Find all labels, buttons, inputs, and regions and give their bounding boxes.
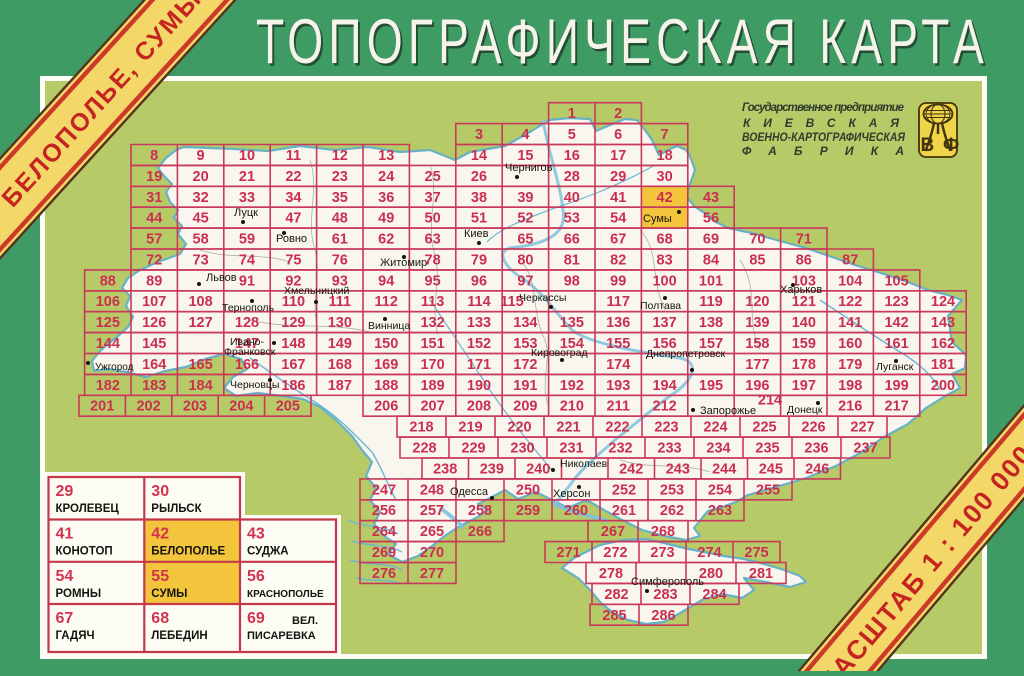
svg-text:234: 234 — [706, 441, 730, 457]
svg-text:139: 139 — [745, 315, 769, 331]
svg-text:113: 113 — [421, 294, 444, 310]
svg-text:50: 50 — [425, 211, 441, 227]
svg-text:268: 268 — [651, 524, 675, 540]
svg-text:Луцк: Луцк — [234, 207, 258, 219]
svg-text:Ф: Ф — [943, 135, 959, 156]
svg-text:186: 186 — [281, 378, 305, 394]
svg-text:260: 260 — [564, 503, 588, 519]
svg-text:133: 133 — [467, 315, 491, 331]
svg-text:220: 220 — [507, 420, 531, 436]
svg-text:51: 51 — [471, 211, 487, 227]
svg-text:207: 207 — [420, 399, 444, 415]
svg-text:164: 164 — [142, 357, 166, 373]
svg-text:224: 224 — [703, 420, 727, 436]
svg-text:СУДЖА: СУДЖА — [247, 546, 289, 558]
svg-text:Кировоград: Кировоград — [531, 347, 588, 359]
svg-text:32: 32 — [193, 190, 209, 206]
svg-text:96: 96 — [471, 273, 487, 289]
svg-text:187: 187 — [328, 378, 352, 394]
svg-text:42: 42 — [657, 190, 673, 206]
svg-text:68: 68 — [151, 610, 169, 627]
svg-text:256: 256 — [372, 503, 396, 519]
svg-text:19: 19 — [146, 169, 162, 185]
svg-text:55: 55 — [151, 568, 169, 585]
svg-text:258: 258 — [468, 503, 492, 519]
svg-text:128: 128 — [235, 315, 259, 331]
svg-text:160: 160 — [838, 336, 862, 352]
svg-text:148: 148 — [281, 336, 305, 352]
svg-text:273: 273 — [650, 545, 674, 561]
svg-text:205: 205 — [276, 399, 300, 415]
svg-text:138: 138 — [699, 315, 723, 331]
svg-text:34: 34 — [285, 190, 301, 206]
svg-text:202: 202 — [136, 399, 160, 415]
svg-text:86: 86 — [796, 252, 812, 268]
svg-text:150: 150 — [374, 336, 398, 352]
svg-text:Хмельницкий: Хмельницкий — [284, 285, 349, 297]
svg-text:КРАСНОПОЛЬЕ: КРАСНОПОЛЬЕ — [247, 589, 324, 600]
svg-text:246: 246 — [805, 461, 829, 477]
svg-text:Винница: Винница — [368, 320, 410, 332]
svg-text:149: 149 — [328, 336, 352, 352]
svg-text:7: 7 — [661, 127, 669, 143]
svg-text:ТОПОГРАФИЧЕСКАЯ КАРТА: ТОПОГРАФИЧЕСКАЯ КАРТА — [256, 7, 989, 77]
svg-text:30: 30 — [657, 169, 673, 185]
svg-text:162: 162 — [931, 336, 955, 352]
svg-text:66: 66 — [564, 232, 580, 248]
svg-text:119: 119 — [699, 294, 722, 310]
svg-text:РОМНЫ: РОМНЫ — [56, 588, 102, 600]
svg-text:29: 29 — [56, 483, 74, 500]
svg-text:188: 188 — [374, 378, 398, 394]
svg-text:212: 212 — [652, 399, 676, 415]
svg-text:41: 41 — [610, 190, 626, 206]
svg-text:135: 135 — [560, 315, 584, 331]
svg-text:106: 106 — [96, 294, 120, 310]
svg-text:125: 125 — [96, 315, 120, 331]
svg-text:104: 104 — [838, 273, 862, 289]
svg-text:59: 59 — [239, 232, 255, 248]
svg-text:26: 26 — [471, 169, 487, 185]
svg-text:85: 85 — [749, 252, 765, 268]
svg-text:Черновцы: Черновцы — [230, 379, 279, 391]
svg-text:РЫЛЬСК: РЫЛЬСК — [151, 503, 202, 515]
svg-text:Государственное предприятие: Государственное предприятие — [742, 102, 905, 114]
svg-text:271: 271 — [556, 545, 580, 561]
svg-text:198: 198 — [838, 378, 862, 394]
svg-text:11: 11 — [286, 148, 301, 164]
svg-text:181: 181 — [931, 357, 955, 373]
svg-text:165: 165 — [188, 357, 212, 373]
svg-text:40: 40 — [564, 190, 580, 206]
svg-text:80: 80 — [517, 252, 533, 268]
svg-text:Чернигов: Чернигов — [505, 162, 553, 174]
svg-text:143: 143 — [931, 315, 955, 331]
svg-text:200: 200 — [931, 378, 955, 394]
svg-text:214: 214 — [758, 393, 782, 409]
svg-text:195: 195 — [699, 378, 723, 394]
svg-text:30: 30 — [151, 483, 169, 500]
svg-text:47: 47 — [285, 211, 301, 227]
svg-text:124: 124 — [931, 294, 955, 310]
svg-text:209: 209 — [513, 399, 537, 415]
svg-text:253: 253 — [660, 482, 684, 498]
svg-text:72: 72 — [146, 252, 162, 268]
svg-text:63: 63 — [425, 232, 441, 248]
svg-text:281: 281 — [749, 566, 773, 582]
svg-text:87: 87 — [842, 252, 858, 268]
svg-text:122: 122 — [838, 294, 862, 310]
svg-text:121: 121 — [792, 294, 816, 310]
svg-text:43: 43 — [703, 190, 719, 206]
svg-text:33: 33 — [239, 190, 255, 206]
svg-text:137: 137 — [652, 315, 676, 331]
svg-text:88: 88 — [100, 273, 116, 289]
svg-text:68: 68 — [657, 232, 673, 248]
svg-text:217: 217 — [884, 399, 908, 415]
svg-text:Черкассы: Черкассы — [519, 292, 566, 304]
svg-text:254: 254 — [708, 482, 732, 498]
svg-text:Донецк: Донецк — [787, 404, 823, 416]
svg-text:243: 243 — [666, 461, 690, 477]
svg-text:276: 276 — [372, 566, 396, 582]
svg-text:218: 218 — [409, 420, 433, 436]
svg-text:152: 152 — [467, 336, 491, 352]
svg-text:12: 12 — [332, 148, 348, 164]
svg-text:105: 105 — [884, 273, 908, 289]
svg-text:71: 71 — [796, 232, 812, 248]
svg-text:129: 129 — [281, 315, 305, 331]
svg-text:КОНОТОП: КОНОТОП — [56, 546, 113, 558]
svg-text:101: 101 — [699, 273, 723, 289]
svg-text:94: 94 — [378, 273, 394, 289]
svg-text:В: В — [921, 135, 935, 156]
svg-text:114: 114 — [467, 294, 490, 310]
svg-text:242: 242 — [619, 461, 643, 477]
svg-text:ВЕЛ.: ВЕЛ. — [292, 615, 318, 627]
svg-text:177: 177 — [745, 357, 769, 373]
svg-text:Херсон: Херсон — [553, 488, 590, 500]
svg-text:КРОЛЕВЕЦ: КРОЛЕВЕЦ — [56, 503, 120, 515]
svg-text:263: 263 — [708, 503, 732, 519]
svg-text:134: 134 — [513, 315, 537, 331]
svg-text:2: 2 — [614, 106, 622, 122]
svg-text:227: 227 — [850, 420, 874, 436]
svg-text:23: 23 — [332, 169, 348, 185]
svg-text:283: 283 — [653, 587, 677, 603]
svg-text:184: 184 — [188, 378, 212, 394]
svg-text:161: 161 — [884, 336, 908, 352]
svg-text:155: 155 — [606, 336, 630, 352]
svg-text:16: 16 — [564, 148, 580, 164]
svg-text:140: 140 — [792, 315, 816, 331]
svg-text:269: 269 — [372, 545, 396, 561]
svg-text:229: 229 — [461, 441, 485, 457]
svg-text:65: 65 — [517, 232, 533, 248]
svg-text:257: 257 — [420, 503, 444, 519]
svg-text:82: 82 — [610, 252, 626, 268]
svg-text:203: 203 — [183, 399, 207, 415]
svg-text:247: 247 — [372, 482, 396, 498]
svg-text:248: 248 — [420, 482, 444, 498]
svg-text:174: 174 — [606, 357, 630, 373]
svg-text:48: 48 — [332, 211, 348, 227]
svg-text:210: 210 — [560, 399, 584, 415]
svg-text:231: 231 — [559, 441, 583, 457]
svg-text:193: 193 — [606, 378, 630, 394]
svg-text:79: 79 — [471, 252, 487, 268]
svg-text:22: 22 — [285, 169, 301, 185]
svg-text:219: 219 — [458, 420, 482, 436]
svg-text:286: 286 — [651, 608, 675, 624]
svg-text:ВОЕННО-КАРТОГРАФИЧЕСКАЯ: ВОЕННО-КАРТОГРАФИЧЕСКАЯ — [742, 132, 906, 144]
svg-text:74: 74 — [239, 252, 255, 268]
svg-text:171: 171 — [467, 357, 491, 373]
svg-text:54: 54 — [56, 568, 74, 585]
svg-text:31: 31 — [146, 190, 162, 206]
svg-text:197: 197 — [792, 378, 816, 394]
svg-text:Запорожье: Запорожье — [700, 405, 756, 417]
svg-text:216: 216 — [838, 399, 862, 415]
svg-text:112: 112 — [374, 294, 397, 310]
svg-text:67: 67 — [56, 610, 74, 627]
svg-text:8: 8 — [150, 148, 158, 164]
svg-text:170: 170 — [420, 357, 444, 373]
svg-text:196: 196 — [745, 378, 769, 394]
svg-text:169: 169 — [374, 357, 398, 373]
svg-text:Ужгород: Ужгород — [95, 362, 134, 373]
svg-text:53: 53 — [564, 211, 580, 227]
svg-text:5: 5 — [568, 127, 576, 143]
svg-text:24: 24 — [378, 169, 394, 185]
svg-text:182: 182 — [96, 378, 120, 394]
svg-text:222: 222 — [605, 420, 629, 436]
svg-text:100: 100 — [652, 273, 676, 289]
svg-text:21: 21 — [239, 169, 255, 185]
svg-text:1: 1 — [568, 106, 576, 122]
svg-text:275: 275 — [744, 545, 768, 561]
svg-text:95: 95 — [425, 273, 441, 289]
svg-text:56: 56 — [703, 211, 719, 227]
svg-text:17: 17 — [610, 148, 626, 164]
svg-text:277: 277 — [420, 566, 444, 582]
svg-text:221: 221 — [556, 420, 580, 436]
svg-text:244: 244 — [712, 461, 736, 477]
svg-text:13: 13 — [378, 148, 394, 164]
svg-text:Одесса: Одесса — [450, 486, 489, 498]
svg-text:259: 259 — [516, 503, 540, 519]
svg-text:190: 190 — [467, 378, 491, 394]
svg-text:144: 144 — [96, 336, 120, 352]
svg-text:39: 39 — [517, 190, 533, 206]
svg-text:183: 183 — [142, 378, 166, 394]
svg-text:255: 255 — [756, 482, 780, 498]
svg-text:159: 159 — [792, 336, 816, 352]
svg-text:151: 151 — [420, 336, 444, 352]
svg-text:126: 126 — [142, 315, 166, 331]
svg-text:225: 225 — [752, 420, 776, 436]
svg-text:238: 238 — [433, 461, 457, 477]
svg-text:43: 43 — [247, 526, 265, 543]
svg-text:29: 29 — [610, 169, 626, 185]
svg-text:52: 52 — [517, 211, 533, 227]
svg-text:252: 252 — [612, 482, 636, 498]
svg-text:ПИСАРЕВКА: ПИСАРЕВКА — [247, 630, 316, 642]
svg-text:107: 107 — [142, 294, 166, 310]
svg-text:120: 120 — [745, 294, 769, 310]
svg-text:236: 236 — [804, 441, 828, 457]
svg-text:194: 194 — [652, 378, 676, 394]
svg-text:108: 108 — [188, 294, 212, 310]
svg-text:206: 206 — [374, 399, 398, 415]
svg-text:42: 42 — [151, 526, 169, 543]
svg-text:201: 201 — [90, 399, 114, 415]
svg-text:20: 20 — [193, 169, 209, 185]
svg-text:192: 192 — [560, 378, 584, 394]
svg-text:179: 179 — [838, 357, 862, 373]
svg-text:240: 240 — [526, 461, 550, 477]
svg-text:83: 83 — [657, 252, 673, 268]
svg-text:130: 130 — [328, 315, 352, 331]
svg-text:ЛЕБЕДИН: ЛЕБЕДИН — [151, 630, 207, 642]
svg-text:44: 44 — [146, 211, 162, 227]
svg-text:14: 14 — [471, 148, 487, 164]
svg-text:58: 58 — [193, 232, 209, 248]
svg-text:262: 262 — [660, 503, 684, 519]
svg-text:284: 284 — [702, 587, 726, 603]
svg-text:69: 69 — [247, 610, 265, 627]
svg-text:168: 168 — [328, 357, 352, 373]
svg-text:Киев: Киев — [464, 228, 489, 240]
svg-text:250: 250 — [516, 482, 540, 498]
svg-text:76: 76 — [332, 252, 348, 268]
svg-text:37: 37 — [425, 190, 441, 206]
svg-text:67: 67 — [610, 232, 626, 248]
svg-text:278: 278 — [599, 566, 623, 582]
svg-text:61: 61 — [332, 232, 348, 248]
svg-text:158: 158 — [745, 336, 769, 352]
svg-text:136: 136 — [606, 315, 630, 331]
svg-text:54: 54 — [610, 211, 626, 227]
svg-text:35: 35 — [332, 190, 348, 206]
svg-text:272: 272 — [603, 545, 627, 561]
svg-text:274: 274 — [697, 545, 721, 561]
svg-text:261: 261 — [612, 503, 636, 519]
svg-text:3: 3 — [475, 127, 483, 143]
svg-text:69: 69 — [703, 232, 719, 248]
svg-text:10: 10 — [239, 148, 255, 164]
svg-text:9: 9 — [197, 148, 205, 164]
svg-text:81: 81 — [564, 252, 580, 268]
svg-text:142: 142 — [884, 315, 908, 331]
svg-text:230: 230 — [510, 441, 534, 457]
svg-text:245: 245 — [759, 461, 783, 477]
svg-text:233: 233 — [657, 441, 681, 457]
svg-text:49: 49 — [378, 211, 394, 227]
svg-text:25: 25 — [425, 169, 441, 185]
svg-text:73: 73 — [193, 252, 209, 268]
svg-text:232: 232 — [608, 441, 632, 457]
svg-text:28: 28 — [564, 169, 580, 185]
svg-text:226: 226 — [801, 420, 825, 436]
svg-text:18: 18 — [657, 148, 673, 164]
svg-text:38: 38 — [471, 190, 487, 206]
svg-text:75: 75 — [285, 252, 301, 268]
svg-text:267: 267 — [601, 524, 625, 540]
svg-text:ГАДЯЧ: ГАДЯЧ — [56, 630, 95, 642]
svg-text:264: 264 — [372, 524, 396, 540]
svg-text:285: 285 — [602, 608, 626, 624]
svg-text:Сумы: Сумы — [643, 213, 672, 225]
svg-text:СУМЫ: СУМЫ — [151, 588, 187, 600]
svg-text:Франковск: Франковск — [224, 346, 276, 358]
svg-text:123: 123 — [884, 294, 908, 310]
svg-text:Днепропетровск: Днепропетровск — [646, 348, 725, 360]
svg-text:228: 228 — [412, 441, 436, 457]
svg-text:БЕЛОПОЛЬЕ: БЕЛОПОЛЬЕ — [151, 546, 225, 558]
svg-text:57: 57 — [146, 232, 162, 248]
svg-text:178: 178 — [792, 357, 816, 373]
svg-text:167: 167 — [281, 357, 305, 373]
svg-text:208: 208 — [467, 399, 491, 415]
svg-text:145: 145 — [142, 336, 166, 352]
svg-text:Львов: Львов — [206, 272, 237, 284]
svg-text:Симферополь: Симферополь — [631, 576, 704, 588]
svg-text:Николаев: Николаев — [560, 458, 608, 470]
svg-text:270: 270 — [420, 545, 444, 561]
svg-text:127: 127 — [188, 315, 212, 331]
svg-text:91: 91 — [239, 273, 255, 289]
svg-text:4: 4 — [521, 127, 529, 143]
svg-text:41: 41 — [56, 526, 74, 543]
svg-text:239: 239 — [480, 461, 504, 477]
svg-text:45: 45 — [193, 211, 209, 227]
svg-text:36: 36 — [378, 190, 394, 206]
svg-text:132: 132 — [420, 315, 444, 331]
svg-text:99: 99 — [610, 273, 626, 289]
svg-text:6: 6 — [614, 127, 622, 143]
svg-text:117: 117 — [606, 294, 629, 310]
svg-text:172: 172 — [513, 357, 537, 373]
svg-text:98: 98 — [564, 273, 580, 289]
svg-text:191: 191 — [513, 378, 537, 394]
svg-text:204: 204 — [229, 399, 253, 415]
svg-text:Луганск: Луганск — [876, 361, 914, 373]
svg-text:237: 237 — [853, 441, 877, 457]
svg-text:56: 56 — [247, 568, 265, 585]
svg-text:70: 70 — [749, 232, 765, 248]
svg-text:166: 166 — [235, 357, 259, 373]
svg-text:282: 282 — [604, 587, 628, 603]
svg-text:265: 265 — [420, 524, 444, 540]
svg-text:235: 235 — [755, 441, 779, 457]
svg-text:189: 189 — [420, 378, 444, 394]
svg-text:211: 211 — [606, 399, 629, 415]
svg-text:84: 84 — [703, 252, 719, 268]
svg-text:62: 62 — [378, 232, 394, 248]
svg-text:Полтава: Полтава — [640, 300, 681, 312]
svg-text:Харьков: Харьков — [780, 284, 822, 296]
svg-text:Ровно: Ровно — [276, 233, 307, 245]
svg-text:89: 89 — [146, 273, 162, 289]
svg-text:223: 223 — [654, 420, 678, 436]
svg-text:266: 266 — [468, 524, 492, 540]
svg-text:Тернополь: Тернополь — [222, 302, 275, 314]
svg-text:141: 141 — [838, 315, 862, 331]
svg-text:199: 199 — [884, 378, 908, 394]
svg-text:97: 97 — [517, 273, 533, 289]
